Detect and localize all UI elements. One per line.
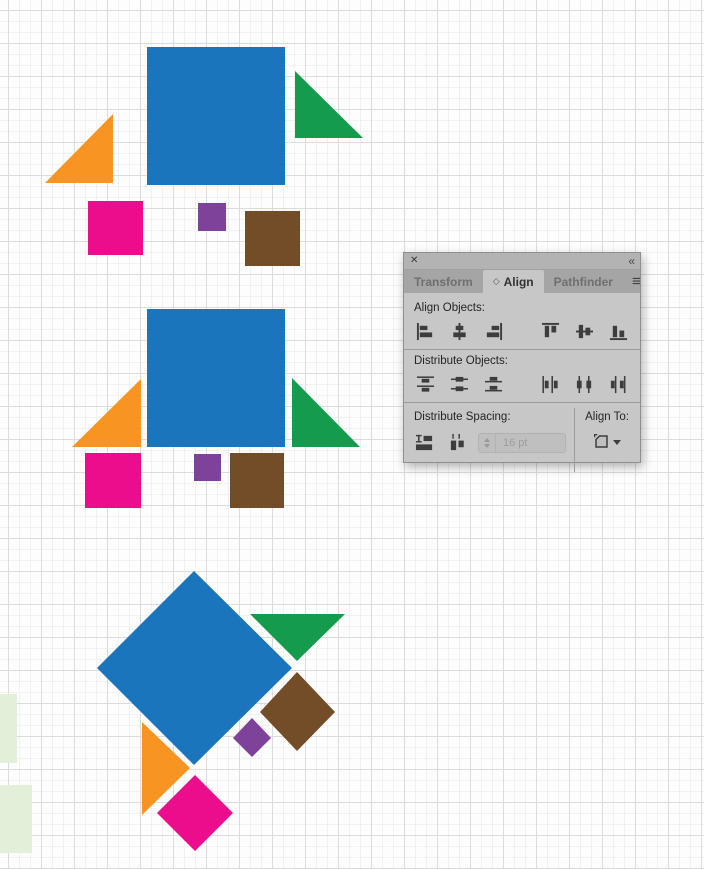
illustrator-canvas: ✕ « Transform ◇ Align Pathfinder ≡ Align… [0, 0, 704, 869]
purple-square[interactable] [198, 203, 226, 231]
pasteboard-object-large[interactable] [0, 785, 32, 853]
chevron-down-icon [613, 440, 621, 445]
pasteboard-object-small[interactable] [0, 694, 17, 763]
align-panel: ✕ « Transform ◇ Align Pathfinder ≡ Align… [403, 252, 641, 463]
purple-square[interactable] [194, 454, 221, 481]
tab-pathfinder-label: Pathfinder [554, 275, 613, 289]
tab-cycle-icon: ◇ [493, 276, 500, 287]
panel-tabstrip: Transform ◇ Align Pathfinder ≡ [404, 270, 640, 293]
group-bottom-rotated [97, 571, 345, 851]
section-divider [404, 402, 640, 403]
horizontal-distribute-left-button[interactable] [539, 374, 562, 395]
horizontal-distribute-center-button[interactable] [573, 374, 596, 395]
panel-menu-button[interactable]: ≡ [623, 270, 650, 293]
distribute-spacing-cluster [413, 432, 470, 453]
dist-hcenter-icon [575, 375, 594, 394]
spacing-value-field[interactable]: 16 pt [478, 433, 566, 453]
magenta-square[interactable] [85, 453, 141, 508]
spacing-h-icon [449, 433, 468, 452]
vertical-distribute-bottom-button[interactable] [482, 374, 505, 395]
spacing-v-icon [415, 433, 434, 452]
orange-triangle[interactable] [45, 114, 113, 183]
brown-square[interactable] [245, 211, 300, 266]
align-objects-row [414, 321, 630, 342]
distribute-spacing-row: 16 pt [413, 432, 574, 453]
align-panel-body: Align Objects: Distribute Objects: Distr… [404, 293, 640, 472]
group-top-scattered [45, 47, 363, 266]
stepper-up-icon[interactable] [484, 438, 490, 442]
vertical-align-bottom-button[interactable] [607, 321, 630, 342]
horizontal-distribute-space-button[interactable] [447, 432, 470, 453]
horizontal-align-center-button[interactable] [448, 321, 471, 342]
hamburger-menu-icon: ≡ [632, 273, 641, 290]
artboard-icon [593, 433, 610, 450]
align-left-icon [416, 322, 435, 341]
dist-hright-icon [609, 375, 628, 394]
section-divider-vertical [574, 408, 575, 472]
green-triangle[interactable] [295, 71, 363, 138]
align-vertical-cluster [539, 321, 630, 342]
tab-align[interactable]: ◇ Align [483, 270, 544, 293]
distribute-objects-label: Distribute Objects: [414, 355, 631, 367]
close-icon[interactable]: ✕ [410, 256, 418, 266]
distribute-horizontal-cluster [539, 374, 630, 395]
panel-titlebar[interactable]: ✕ « [404, 253, 640, 270]
blue-square[interactable] [147, 309, 285, 447]
distribute-spacing-section: Distribute Spacing: 16 pt [413, 408, 574, 472]
distribute-objects-row [414, 374, 630, 395]
vertical-align-center-button[interactable] [573, 321, 596, 342]
panel-bottom-zone: Distribute Spacing: 16 pt [413, 408, 631, 472]
spacing-stepper[interactable] [479, 434, 496, 452]
dist-vtop-icon [416, 375, 435, 394]
blue-square[interactable] [147, 47, 285, 185]
align-right-icon [484, 322, 503, 341]
dist-hleft-icon [541, 375, 560, 394]
vertical-distribute-space-button[interactable] [413, 432, 436, 453]
horizontal-align-left-button[interactable] [414, 321, 437, 342]
distribute-spacing-label: Distribute Spacing: [414, 411, 574, 423]
stepper-down-icon[interactable] [484, 444, 490, 448]
align-vcenter-icon [575, 322, 594, 341]
group-middle-aligned [72, 309, 360, 508]
vertical-align-top-button[interactable] [539, 321, 562, 342]
horizontal-distribute-right-button[interactable] [607, 374, 630, 395]
green-triangle[interactable] [292, 378, 360, 447]
orange-triangle[interactable] [72, 379, 141, 447]
spacing-value: 16 pt [496, 437, 527, 449]
dist-vbottom-icon [484, 375, 503, 394]
align-top-icon [541, 322, 560, 341]
tab-transform-label: Transform [414, 275, 473, 289]
horizontal-align-right-button[interactable] [482, 321, 505, 342]
brown-square[interactable] [230, 453, 284, 508]
align-objects-label: Align Objects: [414, 302, 631, 314]
align-to-section: Align To: [582, 408, 631, 472]
dist-vcenter-icon [450, 375, 469, 394]
vertical-distribute-top-button[interactable] [414, 374, 437, 395]
align-hcenter-icon [450, 322, 469, 341]
vertical-distribute-center-button[interactable] [448, 374, 471, 395]
tab-align-label: Align [504, 275, 534, 289]
magenta-square[interactable] [88, 201, 143, 255]
purple-diamond[interactable] [233, 718, 271, 757]
tab-pathfinder[interactable]: Pathfinder [544, 270, 623, 293]
align-to-label: Align To: [583, 411, 629, 423]
tab-transform[interactable]: Transform [404, 270, 483, 293]
distribute-vertical-cluster [414, 374, 505, 395]
align-horizontal-cluster [414, 321, 505, 342]
align-to-artboard-button[interactable] [593, 433, 621, 450]
section-divider [404, 349, 640, 350]
collapse-panel-icon[interactable]: « [628, 256, 634, 266]
align-bottom-icon [609, 322, 628, 341]
